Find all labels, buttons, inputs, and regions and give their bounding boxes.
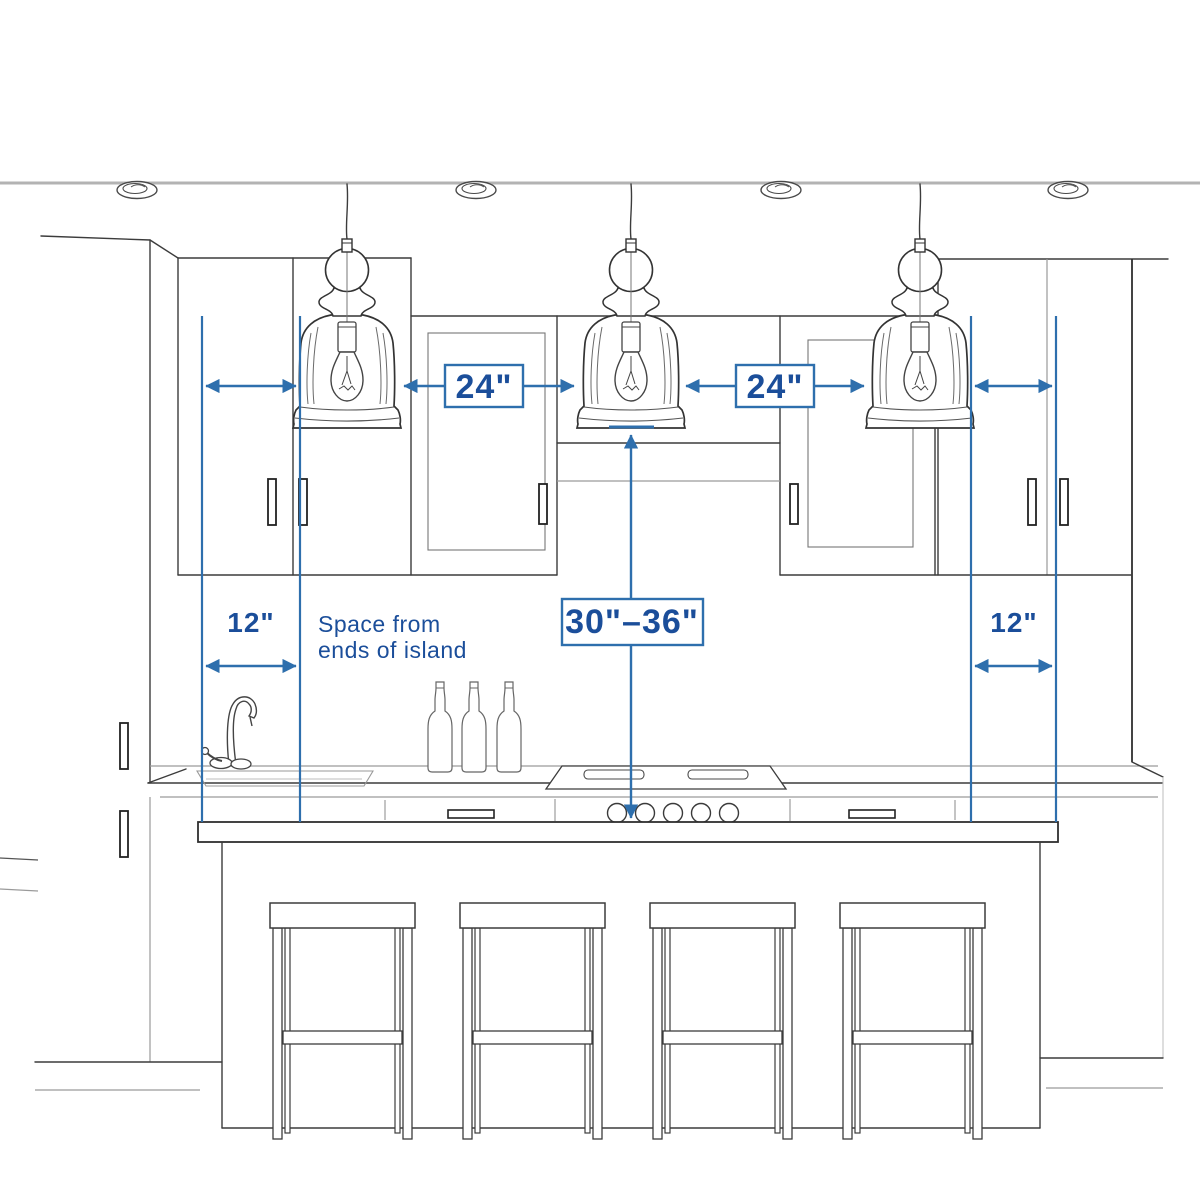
wine-bottle-icon bbox=[462, 682, 486, 772]
bar-stool-icon bbox=[270, 903, 415, 1139]
cabinet-handle bbox=[539, 484, 547, 524]
faucet-icon bbox=[202, 697, 257, 769]
drawer-handle bbox=[448, 810, 494, 818]
cabinet-handles bbox=[120, 479, 1068, 857]
recessed-light-icon bbox=[117, 182, 157, 199]
wine-bottles bbox=[428, 682, 521, 772]
bar-stool-icon bbox=[840, 903, 985, 1139]
kitchen-island bbox=[198, 822, 1058, 1128]
sink bbox=[197, 771, 373, 786]
bar-stool-icon bbox=[460, 903, 605, 1139]
recessed-light-icon bbox=[1048, 182, 1088, 199]
wine-bottle-icon bbox=[428, 682, 452, 772]
range-knob bbox=[664, 804, 683, 823]
control-knobs bbox=[608, 804, 739, 823]
diagram-canvas: 24" 24" 30"–36" 12" 12" Space from ends … bbox=[0, 0, 1200, 1200]
island-countertop-slab bbox=[198, 822, 1058, 842]
drawer-handle bbox=[849, 810, 895, 818]
cabinet-handle bbox=[1060, 479, 1068, 525]
cooktop bbox=[546, 766, 786, 789]
island-note-line1: Space from bbox=[318, 611, 441, 637]
spacing-label-left: 24" bbox=[456, 368, 513, 406]
cabinet-handle bbox=[1028, 479, 1036, 525]
pendant-lights bbox=[293, 184, 974, 428]
ceiling bbox=[0, 182, 1200, 199]
range-knob bbox=[608, 804, 627, 823]
kitchen-pendant-spacing-diagram: 24" 24" 30"–36" 12" 12" Space from ends … bbox=[0, 0, 1200, 1200]
height-range-label: 30"–36" bbox=[565, 603, 699, 641]
floor-lines bbox=[0, 858, 1163, 1090]
pendant-light-icon bbox=[293, 184, 401, 428]
wine-bottle-icon bbox=[497, 682, 521, 772]
spacing-label-right: 24" bbox=[747, 368, 804, 406]
range-knob bbox=[692, 804, 711, 823]
bar-stool-icon bbox=[650, 903, 795, 1139]
pendant-light-icon bbox=[577, 184, 685, 428]
recessed-light-icon bbox=[761, 182, 801, 199]
bar-stools bbox=[270, 903, 985, 1139]
end-clearance-label-right: 12" bbox=[990, 607, 1037, 638]
island-note-line2: ends of island bbox=[318, 637, 467, 663]
end-clearance-label-left: 12" bbox=[227, 607, 274, 638]
range-knob bbox=[720, 804, 739, 823]
cabinet-handle bbox=[790, 484, 798, 524]
recessed-light-icon bbox=[456, 182, 496, 199]
cabinet-handle bbox=[120, 811, 128, 857]
cabinet-handle bbox=[268, 479, 276, 525]
range-knob bbox=[636, 804, 655, 823]
pendant-light-icon bbox=[866, 184, 974, 428]
cabinet-handle bbox=[120, 723, 128, 769]
